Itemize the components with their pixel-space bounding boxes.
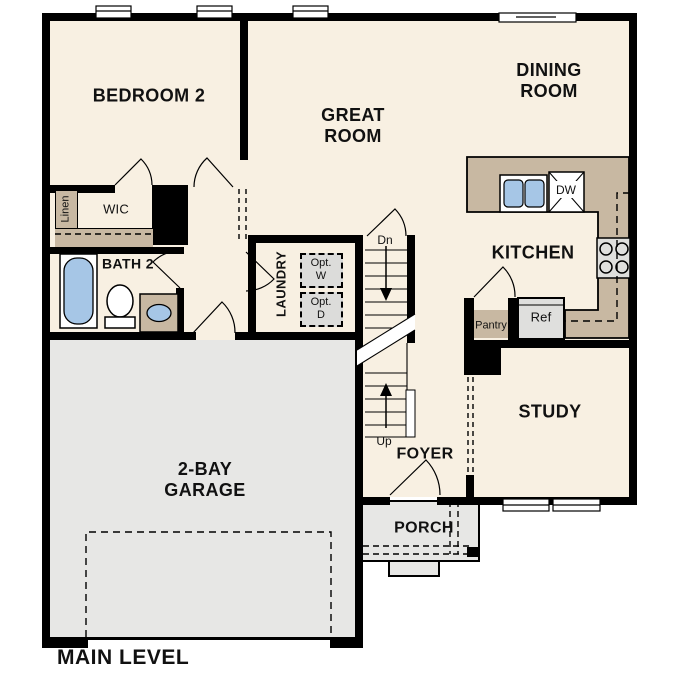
- wall-block-wic-hall: [152, 185, 188, 245]
- label-optional-washer: Opt. W: [311, 257, 332, 283]
- wall-stairs-left-garage-right: [355, 235, 363, 648]
- wall-laundry-left: [248, 235, 256, 340]
- room-label-bath2: BATH 2: [102, 256, 154, 273]
- room-label-foyer: FOYER: [396, 446, 453, 465]
- label-optional-dryer: Opt. D: [311, 296, 332, 322]
- wall-left: [42, 13, 50, 648]
- label-refrigerator: Ref: [531, 309, 552, 324]
- plan-title: MAIN LEVEL: [57, 646, 189, 670]
- wall-right: [629, 13, 637, 505]
- wall-bottom-right-of-door: [437, 497, 637, 505]
- garage-door-threshold: [88, 637, 330, 640]
- room-label-porch: PORCH: [394, 520, 454, 539]
- label-dishwasher: DW: [556, 183, 576, 197]
- room-label-laundry: LAUNDRY: [273, 251, 288, 317]
- label-stairs-up: Up: [376, 434, 391, 448]
- wall-laundry-top: [248, 235, 357, 243]
- wall-bath-top: [50, 247, 184, 254]
- wall-bedroom-great: [240, 13, 248, 160]
- room-label-bedroom2: BEDROOM 2: [93, 85, 206, 106]
- porch-step: [388, 560, 440, 577]
- wall-top: [42, 13, 637, 21]
- label-pantry: Pantry: [475, 320, 507, 333]
- wall-kitchen-study-jog: [464, 340, 501, 375]
- room-label-study: STUDY: [518, 401, 581, 422]
- room-label-wic: WIC: [103, 201, 129, 216]
- wic-shelf-band: [55, 228, 153, 247]
- wall-pantry-right: [508, 298, 517, 340]
- room-label-dining-room: DINING ROOM: [516, 60, 581, 102]
- floor-plan: BEDROOM 2 GREAT ROOM DINING ROOM KITCHEN…: [0, 0, 687, 687]
- wall-stairs-right: [407, 235, 415, 343]
- label-stairs-down: Dn: [377, 233, 392, 247]
- wall-study-left-bottom: [466, 475, 474, 497]
- wall-kitchen-bottom: [483, 340, 637, 348]
- room-label-garage: 2-BAY GARAGE: [164, 459, 245, 501]
- wall-bath-right: [176, 288, 184, 332]
- room-label-great-room: GREAT ROOM: [321, 105, 385, 147]
- wall-garage-top-left: [42, 332, 196, 340]
- room-label-kitchen: KITCHEN: [492, 242, 575, 263]
- room-label-linen: Linen: [60, 196, 73, 223]
